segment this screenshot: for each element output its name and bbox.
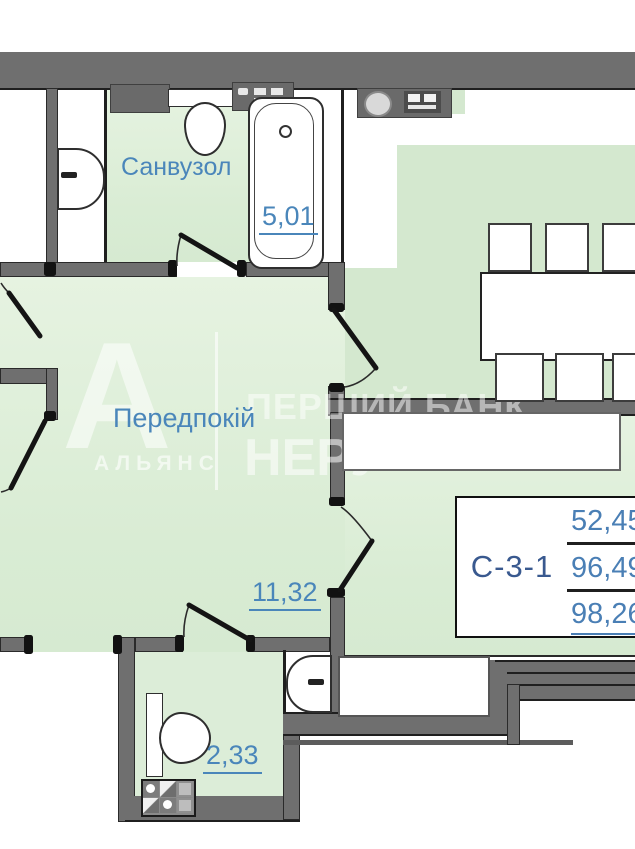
door-stop [168, 260, 177, 277]
bathtub-icon [248, 97, 324, 269]
kitchen-green-sliver [450, 89, 465, 114]
door-stop [329, 303, 344, 312]
kitchen-sink-icon [364, 91, 392, 117]
chair-icon [555, 353, 604, 402]
knob-icon [271, 88, 283, 95]
room-label-hallway: Передпокій [113, 403, 255, 434]
wall-bottom-thin-line [283, 740, 573, 745]
door-stop [237, 260, 246, 277]
watermark-letter: А [62, 320, 172, 472]
door-stop [44, 262, 56, 276]
room-area-wc: 2,33 [203, 740, 262, 774]
table-divider [567, 589, 635, 592]
wall-wc-left-vertical [118, 637, 135, 822]
unit-area-value: 96,49 [571, 552, 635, 585]
chair-icon [612, 353, 635, 402]
washbasin-tap-icon [61, 172, 77, 178]
detail-line [408, 105, 436, 109]
knob-icon [254, 88, 266, 95]
pipe-icon [163, 800, 172, 809]
room-area-bathroom: 5,01 [259, 201, 318, 235]
shaft-cell [177, 798, 193, 813]
vent-shaft-icon [141, 779, 196, 817]
unit-area-value: 52,45 [571, 505, 635, 538]
unit-table-values-column: 52,45 96,49 98,26 [567, 496, 635, 638]
door-stop [246, 635, 255, 652]
wall-step3-horizontal [507, 684, 635, 701]
door-stop [24, 635, 33, 654]
knob-icon [238, 88, 248, 95]
shaft-cell [143, 798, 159, 813]
door-stop [329, 497, 345, 506]
room-area-hallway: 11,32 [249, 577, 321, 611]
washer-cabinet-icon [110, 84, 170, 113]
burner-icon [408, 94, 420, 102]
chair-icon [488, 223, 532, 272]
chair-icon [495, 353, 544, 402]
door-stop [329, 383, 344, 392]
shaft-cell [143, 781, 159, 797]
door-stop [113, 635, 122, 654]
stove-icon [404, 91, 441, 113]
chair-icon [602, 223, 635, 272]
wall-kitchen-left-line [341, 88, 344, 270]
cabinet-bottom [338, 656, 490, 717]
dining-table [480, 272, 635, 361]
shaft-cell [160, 798, 176, 813]
door-stop [44, 411, 56, 421]
shaft-cell [177, 781, 193, 797]
watermark-brand: АЛЬЯНС [94, 452, 220, 476]
unit-number: С-3-1 [457, 498, 567, 636]
door-stop [327, 588, 345, 597]
burner-icon [424, 94, 436, 102]
wardrobe [342, 412, 621, 471]
unit-area-value: 98,26 [571, 598, 635, 635]
wall-wc-top-right [248, 637, 330, 652]
wall-step2-vertical [495, 672, 507, 728]
room-label-bathroom: Санвузол [121, 153, 231, 182]
washbasin-bottom-tap-icon [308, 679, 324, 685]
bathtub-drain-icon [279, 125, 292, 138]
wall-top [0, 52, 635, 90]
unit-table-left-cell: С-3-1 [455, 496, 569, 638]
wall-bath-bottom-left [46, 262, 177, 277]
washbasin-icon [57, 148, 105, 210]
door-stop [175, 635, 184, 652]
pipe-icon [146, 784, 155, 793]
table-divider [567, 542, 635, 545]
chair-icon [545, 223, 589, 272]
floor-plan: А АЛЬЯНС ПЕРШИЙ БАНК НЕРУ [0, 0, 635, 849]
kitchen-rug-left [345, 268, 397, 398]
shaft-cell [160, 781, 176, 797]
wall-step3-vertical [507, 684, 520, 745]
